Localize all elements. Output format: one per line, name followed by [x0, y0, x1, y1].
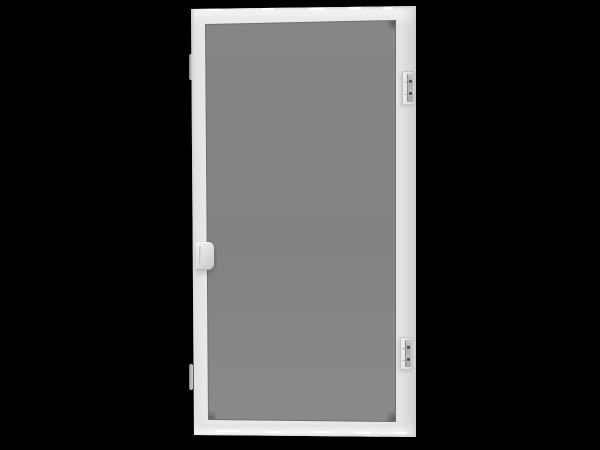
highlight-dash	[349, 7, 361, 9]
highlight-dash	[262, 8, 274, 10]
highlight-dash	[309, 8, 325, 10]
latch-screw	[409, 92, 412, 95]
highlight-dash	[383, 7, 393, 9]
latch-screw	[409, 80, 412, 83]
pull-handle	[196, 242, 214, 270]
screen-mesh	[190, 5, 418, 439]
screen-frame	[190, 5, 418, 439]
latch-channel	[405, 340, 411, 367]
spring-clip-bottom	[189, 364, 193, 390]
latch-channel	[407, 74, 413, 102]
latch-screw	[407, 358, 410, 361]
latch-top	[402, 71, 415, 105]
highlight-dash	[313, 431, 331, 433]
spring-clip-top	[189, 54, 193, 80]
highlight-dash	[356, 432, 371, 434]
latch-bottom	[400, 337, 413, 370]
window-screen	[190, 5, 418, 439]
photo-stage	[0, 0, 600, 450]
pull-handle-groove	[199, 246, 202, 265]
latch-screw	[407, 346, 410, 349]
highlight-dash	[207, 9, 221, 11]
highlight-dash	[266, 431, 283, 433]
highlight-dash	[393, 432, 407, 434]
highlight-dash	[216, 430, 240, 432]
